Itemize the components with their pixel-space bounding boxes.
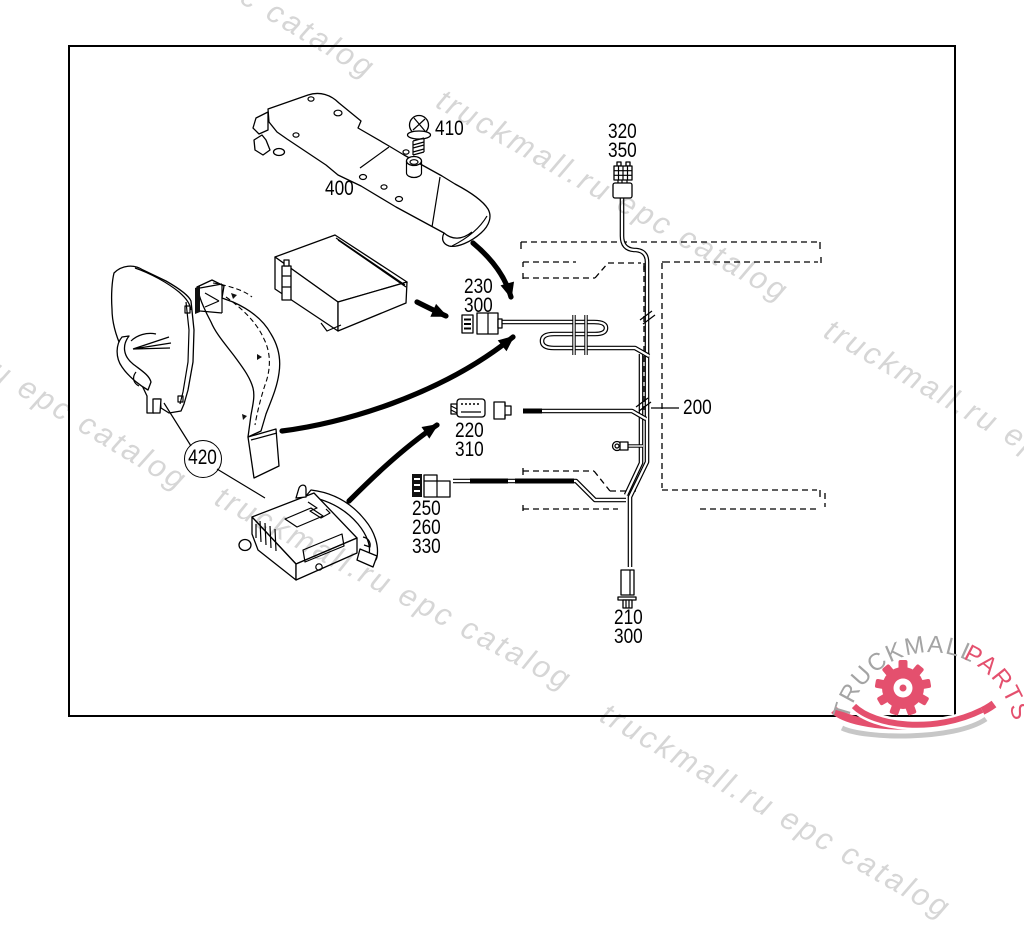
parts-diagram-canvas: TRUCKMALL PARTS (0, 0, 1024, 750)
callout-410: 410 (435, 119, 464, 138)
callout-220-310: 220310 (455, 421, 484, 459)
callout-200: 200 (683, 398, 712, 417)
callout-210-300: 210300 (614, 608, 643, 646)
callout-230-300: 230300 (464, 277, 493, 315)
connector-250-260-330 (412, 474, 450, 497)
callout-250-260-330: 250260 330 (412, 499, 441, 556)
control-module (275, 235, 407, 331)
callout-320-350: 320350 (608, 122, 637, 160)
parts-catalog-page: TRUCKMALL PARTS 410 400 320350 230300 20… (0, 0, 1024, 750)
connector-220-310 (451, 399, 511, 419)
radio-unit (239, 485, 378, 580)
brand-logo: TRUCKMALL PARTS (828, 631, 1024, 736)
dashed-panel-outline (521, 242, 825, 511)
callout-400: 400 (325, 179, 354, 198)
callout-420-circle: 420 (184, 440, 222, 478)
connector-320-350 (613, 162, 632, 198)
connector-210-300 (618, 570, 636, 608)
diagram-frame (69, 46, 955, 716)
